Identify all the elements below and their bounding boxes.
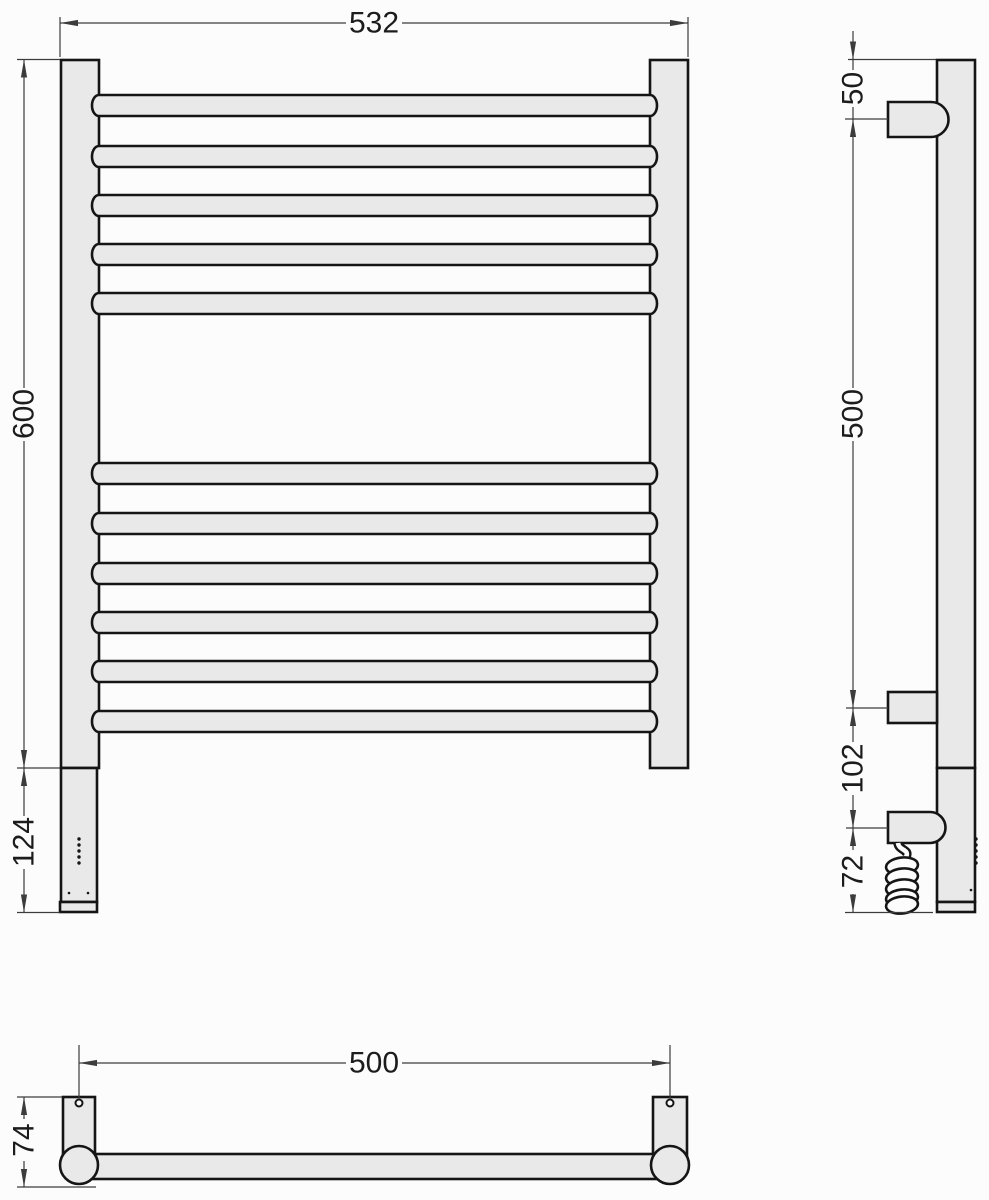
towel-bar [92, 293, 657, 314]
dimension-label-bracket-span: 500 [837, 389, 870, 439]
dimension-label-outlet-gap: 102 [837, 743, 870, 793]
wall-bracket-upper [888, 102, 949, 137]
screw [68, 892, 71, 895]
side-view [885, 60, 978, 915]
towel-bar [92, 661, 657, 682]
plan-post-left [60, 1146, 98, 1184]
dimension-label-heater: 124 [8, 817, 41, 867]
led-indicator-edge [974, 849, 977, 852]
towel-bar [92, 195, 657, 216]
led-indicator-edge [974, 837, 977, 840]
led-indicator [77, 861, 80, 864]
dimension-label-bottom-gap: 72 [837, 855, 870, 888]
power-outlet-box [888, 812, 946, 843]
side-post [937, 60, 975, 768]
towel-bar [92, 244, 657, 265]
towel-bar [92, 95, 657, 116]
plan-bar [85, 1154, 665, 1179]
dimension-front-heater: 124 [8, 768, 61, 913]
technical-drawing: 532 600 124 50 500 102 72 500 74 [0, 0, 989, 1200]
towel-bar [92, 612, 657, 633]
dimension-front-width: 532 [60, 7, 688, 58]
mount-hole-left [76, 1100, 83, 1107]
led-indicator [77, 849, 80, 852]
led-indicator-edge [974, 855, 977, 858]
dimension-label-top-offset: 50 [837, 72, 870, 105]
led-indicator [77, 855, 80, 858]
screw [970, 889, 973, 892]
plan-view [60, 1097, 689, 1184]
towel-rail-drawing-svg: 532 600 124 50 500 102 72 500 74 [0, 0, 989, 1200]
heater-unit [61, 768, 97, 902]
dimension-label-height: 600 [8, 389, 41, 439]
front-view [60, 60, 688, 912]
dimension-side-chain: 50 500 102 72 [837, 31, 937, 913]
plan-post-right [651, 1146, 689, 1184]
screw [87, 892, 90, 895]
towel-bar [92, 711, 657, 732]
dimension-label-mount-spacing: 500 [349, 1047, 399, 1080]
dimension-plan-width: 500 [79, 1045, 670, 1098]
towel-bar [92, 513, 657, 534]
towel-bar [92, 463, 657, 484]
towel-bar [92, 146, 657, 167]
led-indicator [77, 843, 80, 846]
right-post [650, 60, 688, 768]
wall-bracket-lower [888, 692, 937, 723]
dimension-front-height: 600 [8, 60, 61, 769]
led-indicator-edge [974, 843, 977, 846]
towel-bar [92, 563, 657, 584]
side-heater-end-cap [937, 902, 975, 912]
led-indicator-edge [974, 861, 977, 864]
heater-end-cap [60, 902, 97, 912]
mount-hole-right [667, 1100, 674, 1107]
led-indicator [77, 837, 80, 840]
dimension-label-width: 532 [349, 7, 399, 40]
dimension-label-depth: 74 [8, 1123, 41, 1156]
left-post [61, 60, 99, 768]
